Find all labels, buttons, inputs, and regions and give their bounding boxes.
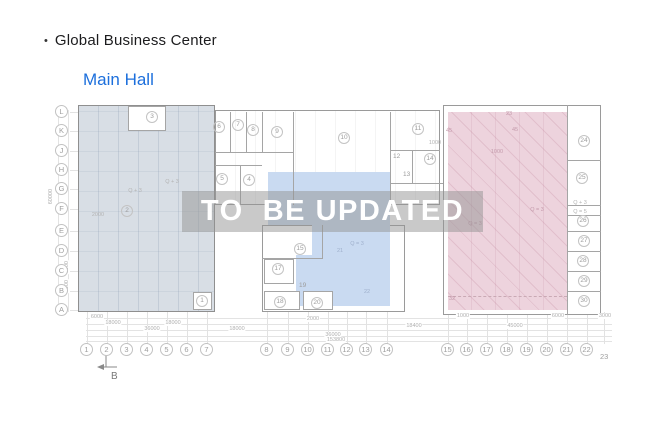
room-label: 11	[412, 123, 424, 135]
dimension-label: 6000	[551, 313, 565, 319]
dimension-label: 3000	[598, 313, 612, 319]
room-label: 5	[216, 173, 228, 185]
wall-segment	[567, 291, 601, 292]
grid-extension-line	[547, 312, 548, 344]
wall-segment	[567, 251, 601, 252]
grid-col-label: 15	[441, 343, 454, 356]
dimension-label: 18400	[405, 323, 422, 329]
room-label: 7	[232, 119, 244, 131]
grid-extension-line	[448, 312, 449, 344]
grid-col-label: 2	[100, 343, 113, 356]
grid-extension-line	[87, 312, 88, 344]
grid-extension-line	[70, 131, 78, 132]
grid-extension-line	[366, 312, 367, 344]
room-label: 19	[299, 282, 306, 289]
grid-col-label: 7	[200, 343, 213, 356]
dimension-label: 60000	[48, 188, 54, 205]
grid-extension-line	[70, 310, 78, 311]
grid-col-label: 19	[520, 343, 533, 356]
bullet-icon: •	[44, 35, 48, 47]
wall-segment	[567, 271, 601, 272]
wall-segment	[412, 150, 413, 183]
wall-segment	[567, 231, 601, 232]
grid-col-label: 13	[359, 343, 372, 356]
grid-extension-line	[187, 312, 188, 344]
room-label: 15	[294, 243, 306, 255]
grid-row-label: E	[55, 224, 68, 237]
grid-extension-line	[70, 189, 78, 190]
wall-segment	[567, 105, 568, 315]
dimension-label: 18000	[104, 320, 121, 326]
dimension-line	[86, 318, 612, 319]
room-label: 3	[146, 111, 158, 123]
grid-row-label: F	[55, 202, 68, 215]
grid-col-label: 23	[600, 352, 608, 361]
grid-col-label: 4	[140, 343, 153, 356]
wall-segment	[262, 112, 263, 153]
annotation: 23	[506, 111, 512, 117]
grid-extension-line	[267, 312, 268, 344]
grid-extension-line	[387, 312, 388, 344]
dimension-label: 153800	[326, 337, 346, 343]
wall-segment	[390, 183, 443, 184]
wall-segment	[567, 160, 601, 161]
wall-segment	[215, 152, 294, 153]
wall-segment	[262, 258, 322, 259]
grid-row-label: A	[55, 303, 68, 316]
annotation: Q = 5	[573, 209, 587, 215]
grid-extension-line	[587, 312, 588, 344]
grid-row-label: G	[55, 182, 68, 195]
grid-col-label: 6	[180, 343, 193, 356]
grid-col-label: 18	[500, 343, 513, 356]
dimension-label: 36000	[143, 326, 160, 332]
grid-extension-line	[288, 312, 289, 344]
grid-extension-line	[347, 312, 348, 344]
annotation: Q = 3	[530, 207, 544, 213]
room-label: 30	[578, 295, 590, 307]
grid-col-label: 1	[80, 343, 93, 356]
dimension-label: 6000	[90, 314, 104, 320]
room-label: 21	[337, 248, 343, 254]
room-label: 9	[271, 126, 283, 138]
grid-extension-line	[207, 312, 208, 344]
grid-col-label: 10	[301, 343, 314, 356]
grid-extension-line	[70, 291, 78, 292]
room-label: 22	[364, 289, 370, 295]
svg-text:B: B	[111, 371, 118, 382]
dimension-label: 45000	[506, 323, 523, 329]
grid-col-label: 17	[480, 343, 493, 356]
wall-segment	[215, 165, 262, 166]
room-label: 29	[578, 275, 590, 287]
grid-row-label: J	[55, 144, 68, 157]
annotation: 1000	[429, 140, 441, 146]
section-subtitle: Main Hall	[83, 70, 154, 90]
grid-row-label: L	[55, 105, 68, 118]
dimension-label: 18000	[228, 326, 245, 332]
room-label: 2	[121, 205, 133, 217]
grid-col-label: 21	[560, 343, 573, 356]
grid-extension-line	[70, 231, 78, 232]
room-label: 18	[274, 296, 286, 308]
room-label: 24	[578, 135, 590, 147]
room-label: 4	[243, 174, 255, 186]
room-label: 27	[578, 235, 590, 247]
room-label: 25	[576, 172, 588, 184]
grid-extension-line	[487, 312, 488, 344]
grid-row-label: D	[55, 244, 68, 257]
grid-extension-line	[70, 170, 78, 171]
grid-extension-line	[70, 209, 78, 210]
grid-extension-line	[70, 112, 78, 113]
grid-extension-line	[70, 271, 78, 272]
dimension-label: 2000	[306, 316, 320, 322]
wall-segment	[230, 112, 231, 152]
annotation: 45	[446, 128, 452, 134]
overlay-text: TO BE UPDATED	[201, 195, 464, 228]
dimension-line	[86, 336, 612, 337]
wall-segment	[390, 150, 440, 151]
grid-col-label: 20	[540, 343, 553, 356]
grid-col-label: 11	[321, 343, 334, 356]
grid-extension-line	[167, 312, 168, 344]
grid-col-label: 3	[120, 343, 133, 356]
grid-extension-line	[527, 312, 528, 344]
annotation: Q + 3	[573, 200, 587, 206]
grid-extension-line	[70, 151, 78, 152]
annotation: Q + 3	[165, 179, 179, 185]
room-label: 17	[272, 263, 284, 275]
dimension-line	[86, 341, 612, 342]
slide: • Global Business Center Main Hall B TO …	[0, 0, 660, 440]
room-label: 1	[196, 295, 208, 307]
grid-col-label: 14	[380, 343, 393, 356]
dimension-line	[86, 330, 612, 331]
grid-extension-line	[567, 312, 568, 344]
grid-row-label: H	[55, 163, 68, 176]
dimension-label: 1000	[456, 313, 470, 319]
annotation: 2000	[92, 212, 104, 218]
page-title: Global Business Center	[55, 32, 217, 49]
grid-row-label: K	[55, 124, 68, 137]
room-label: 12	[393, 153, 400, 160]
room-label: 10	[338, 132, 350, 144]
grid-row-label: C	[55, 264, 68, 277]
dimension-label: 18000	[164, 320, 181, 326]
grid-extension-line	[127, 312, 128, 344]
annotation: 45	[512, 127, 518, 133]
grid-row-label: B	[55, 284, 68, 297]
floor-plan: B TO BE UPDATED LKJHGFEDCBA1234567891011…	[0, 95, 660, 395]
grid-col-label: 9	[281, 343, 294, 356]
room-label: 28	[577, 255, 589, 267]
room-label: 6	[213, 121, 225, 133]
room-label: 13	[403, 171, 410, 178]
annotation: Q + 3	[128, 188, 142, 194]
grid-extension-line	[107, 312, 108, 344]
annotation: 32	[449, 296, 455, 302]
room-label: 26	[577, 215, 589, 227]
annotation: 1000	[491, 149, 503, 155]
room-label: 14	[424, 153, 436, 165]
pink-region-dashed-line	[448, 296, 567, 297]
grid-col-label: 12	[340, 343, 353, 356]
title-row: • Global Business Center	[44, 32, 217, 49]
room-label: 20	[311, 297, 323, 309]
grid-col-label: 8	[260, 343, 273, 356]
annotation: Q = 3	[350, 241, 364, 247]
overlay-banner: TO BE UPDATED	[182, 191, 483, 232]
grid-col-label: 22	[580, 343, 593, 356]
grid-col-label: 5	[160, 343, 173, 356]
grid-col-label: 16	[460, 343, 473, 356]
room-label: 8	[247, 124, 259, 136]
grid-extension-line	[70, 251, 78, 252]
